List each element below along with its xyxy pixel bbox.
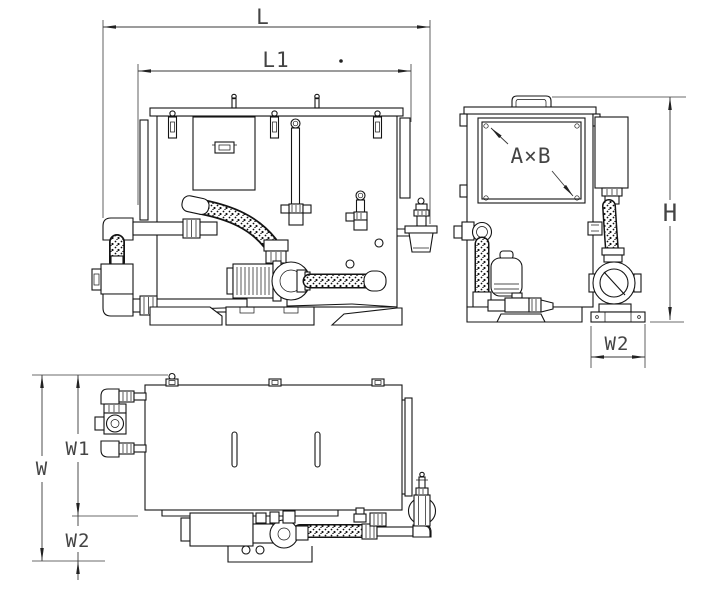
plan-tank [145,374,412,511]
plan-valve-assembly [95,389,146,457]
dim-label-pump-overhang-width: W2 [66,530,91,552]
plan-lid-latch [269,379,281,386]
front-ball-valve [92,264,133,294]
dim-label-tank-width: W1 [66,438,91,460]
dim-label-pump-base-width: W2 [605,333,630,355]
side-view: A×B [454,96,686,368]
plan-side-plate [405,398,412,496]
plan-pump-assembly [162,508,431,562]
dim-label-overall-height: H [663,199,677,227]
lid-pin [232,94,236,108]
wall-hole [375,239,383,247]
technical-drawing: L L1 [0,0,721,590]
front-view: L L1 [92,5,437,325]
plan-lid-latch [372,379,384,386]
dim-label-tank-length: L1 [262,48,289,72]
wall-hole [346,260,354,268]
front-drain-cup [405,198,437,252]
front-discharge-hose [310,271,386,291]
dim-label-panel-size: A×B [511,144,552,168]
dot-mark [339,59,343,63]
plan-view: W W1 W2 [32,374,436,581]
dim-label-overall-length: L [256,5,270,29]
side-pump-flange [589,262,641,304]
lid-pin [315,94,319,108]
side-right-assembly [588,117,645,322]
dim-label-overall-width: W [36,458,48,480]
